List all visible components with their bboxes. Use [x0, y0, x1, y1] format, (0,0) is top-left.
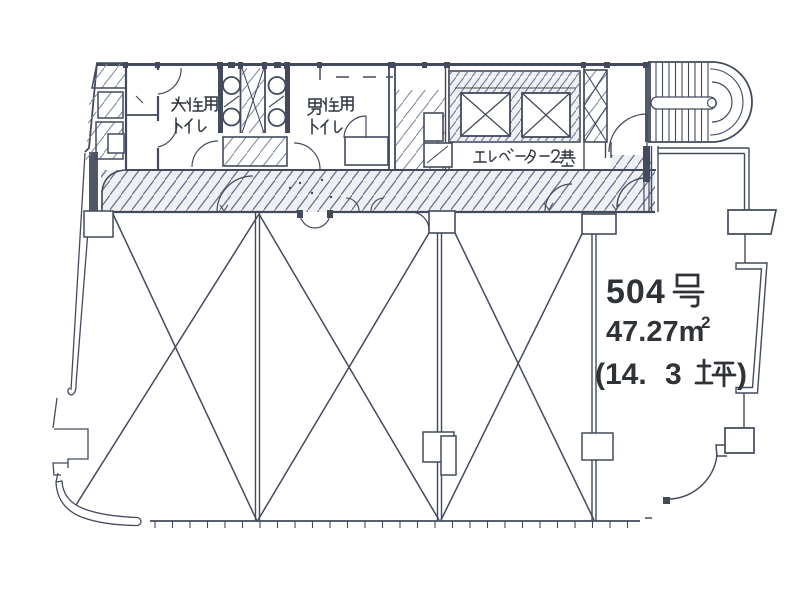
svg-text:47.27m: 47.27m	[606, 316, 704, 348]
svg-text:(14.: (14.	[595, 358, 647, 391]
svg-text:3: 3	[665, 358, 682, 391]
svg-text:2: 2	[701, 313, 710, 332]
svg-text:): )	[737, 358, 747, 391]
svg-text:504: 504	[606, 273, 666, 311]
